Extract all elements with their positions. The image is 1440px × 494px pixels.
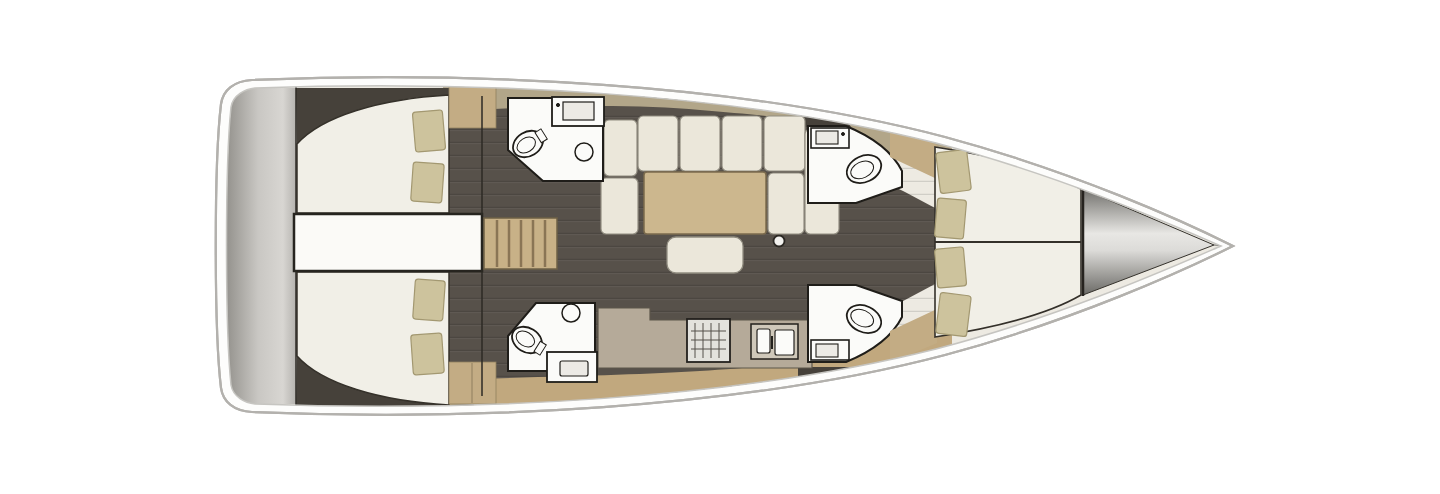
pillow [936, 149, 972, 193]
sink-icon [562, 304, 580, 322]
pillow [412, 110, 445, 152]
sofa-cushion [768, 173, 804, 234]
vanity-sink [816, 131, 838, 144]
vanity-sink [816, 344, 838, 357]
pillow [411, 333, 445, 375]
sink-icon [575, 143, 593, 161]
pillow [411, 162, 445, 203]
sofa-cushion [604, 120, 637, 176]
pillow [934, 247, 966, 288]
pillow [413, 279, 446, 321]
pillow [936, 292, 972, 336]
yacht-floor-plan [0, 0, 1440, 494]
faucet-icon [842, 133, 845, 136]
wardrobe-cabinet [449, 84, 496, 128]
engine-compartment [294, 214, 482, 271]
vanity-sink [563, 102, 594, 120]
mast-post [774, 236, 785, 247]
companionway-stairs [484, 218, 557, 269]
stove-icon [687, 319, 730, 362]
faucet-icon [556, 103, 559, 106]
ottoman [667, 237, 743, 273]
sofa-cushion [638, 116, 678, 171]
floor-plan-canvas [0, 0, 1440, 494]
salon-table [644, 172, 766, 234]
galley-sink [751, 324, 798, 359]
sofa-cushion [601, 178, 638, 234]
pillow [934, 198, 966, 239]
vanity-sink [560, 361, 588, 376]
sofa-cushion [722, 116, 762, 171]
forward-v-berth-cabin [890, 125, 1229, 363]
sofa-cushion [764, 116, 805, 171]
sofa-cushion [680, 116, 720, 171]
swim-platform-transom [227, 88, 298, 404]
